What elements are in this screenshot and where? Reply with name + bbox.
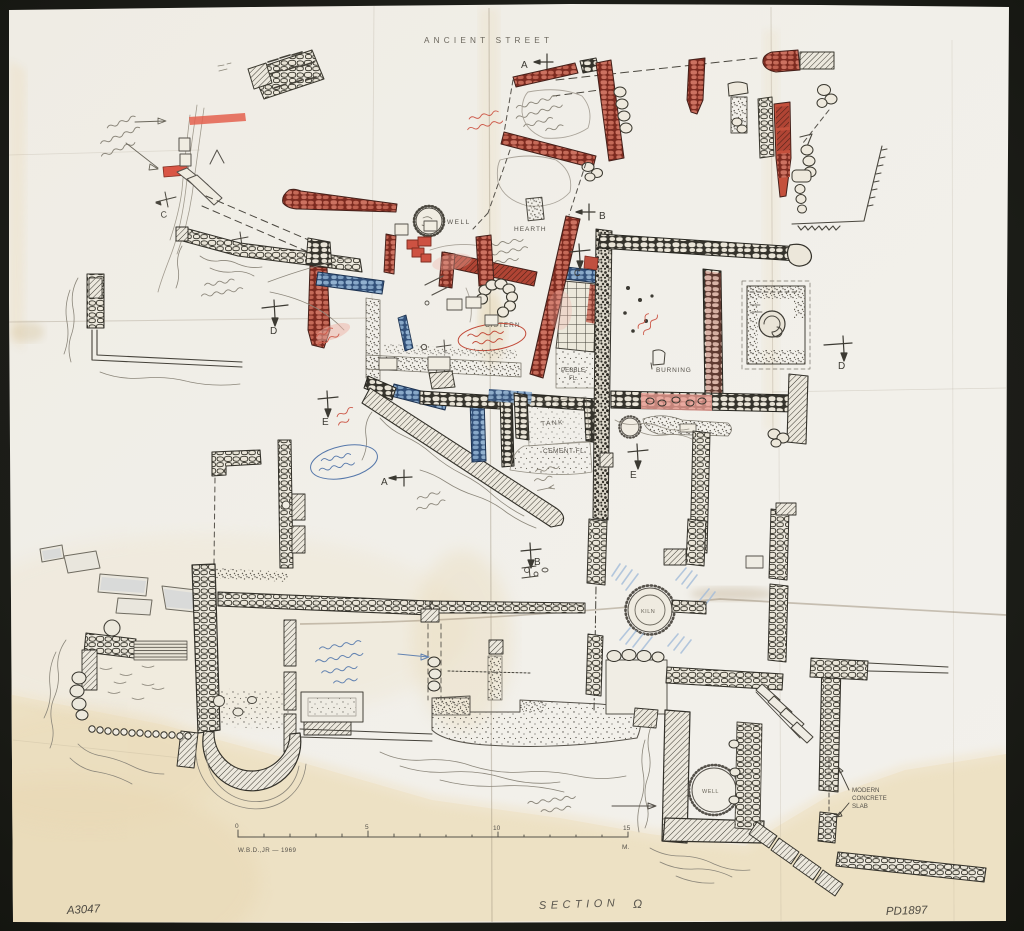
svg-text:MODERN: MODERN <box>852 787 880 794</box>
svg-text:BURNING: BURNING <box>656 367 692 374</box>
svg-text:A3047: A3047 <box>66 903 101 917</box>
svg-text:FL.: FL. <box>569 375 578 382</box>
svg-text:C: C <box>574 268 581 278</box>
svg-text:A: A <box>381 477 388 488</box>
svg-text:WELL: WELL <box>447 219 471 226</box>
svg-text:E: E <box>630 470 637 481</box>
svg-text:M.: M. <box>622 844 629 851</box>
svg-text:PEBBLE-: PEBBLE- <box>561 367 587 374</box>
svg-text:CONCRETE: CONCRETE <box>852 795 887 802</box>
svg-text:10: 10 <box>493 825 501 832</box>
svg-text:B: B <box>599 211 606 222</box>
svg-text:PD1897: PD1897 <box>886 905 929 918</box>
svg-text:SLAB: SLAB <box>852 803 868 810</box>
svg-text:WELL: WELL <box>702 789 719 795</box>
svg-text:D: D <box>838 361 845 372</box>
svg-text:0: 0 <box>235 823 239 830</box>
svg-text:HEARTH: HEARTH <box>514 226 547 233</box>
svg-text:15: 15 <box>623 825 631 832</box>
svg-text:E: E <box>322 417 329 428</box>
svg-text:KILN: KILN <box>641 609 655 615</box>
svg-text:D: D <box>270 326 277 337</box>
svg-text:5: 5 <box>365 824 369 831</box>
svg-text:CEMENT FL.: CEMENT FL. <box>543 448 587 455</box>
svg-text:A: A <box>521 60 528 71</box>
svg-text:W.B.D.,JR — 1969: W.B.D.,JR — 1969 <box>238 847 296 854</box>
svg-text:ANCIENT STREET: ANCIENT STREET <box>424 36 553 45</box>
svg-text:Ω: Ω <box>633 897 642 911</box>
